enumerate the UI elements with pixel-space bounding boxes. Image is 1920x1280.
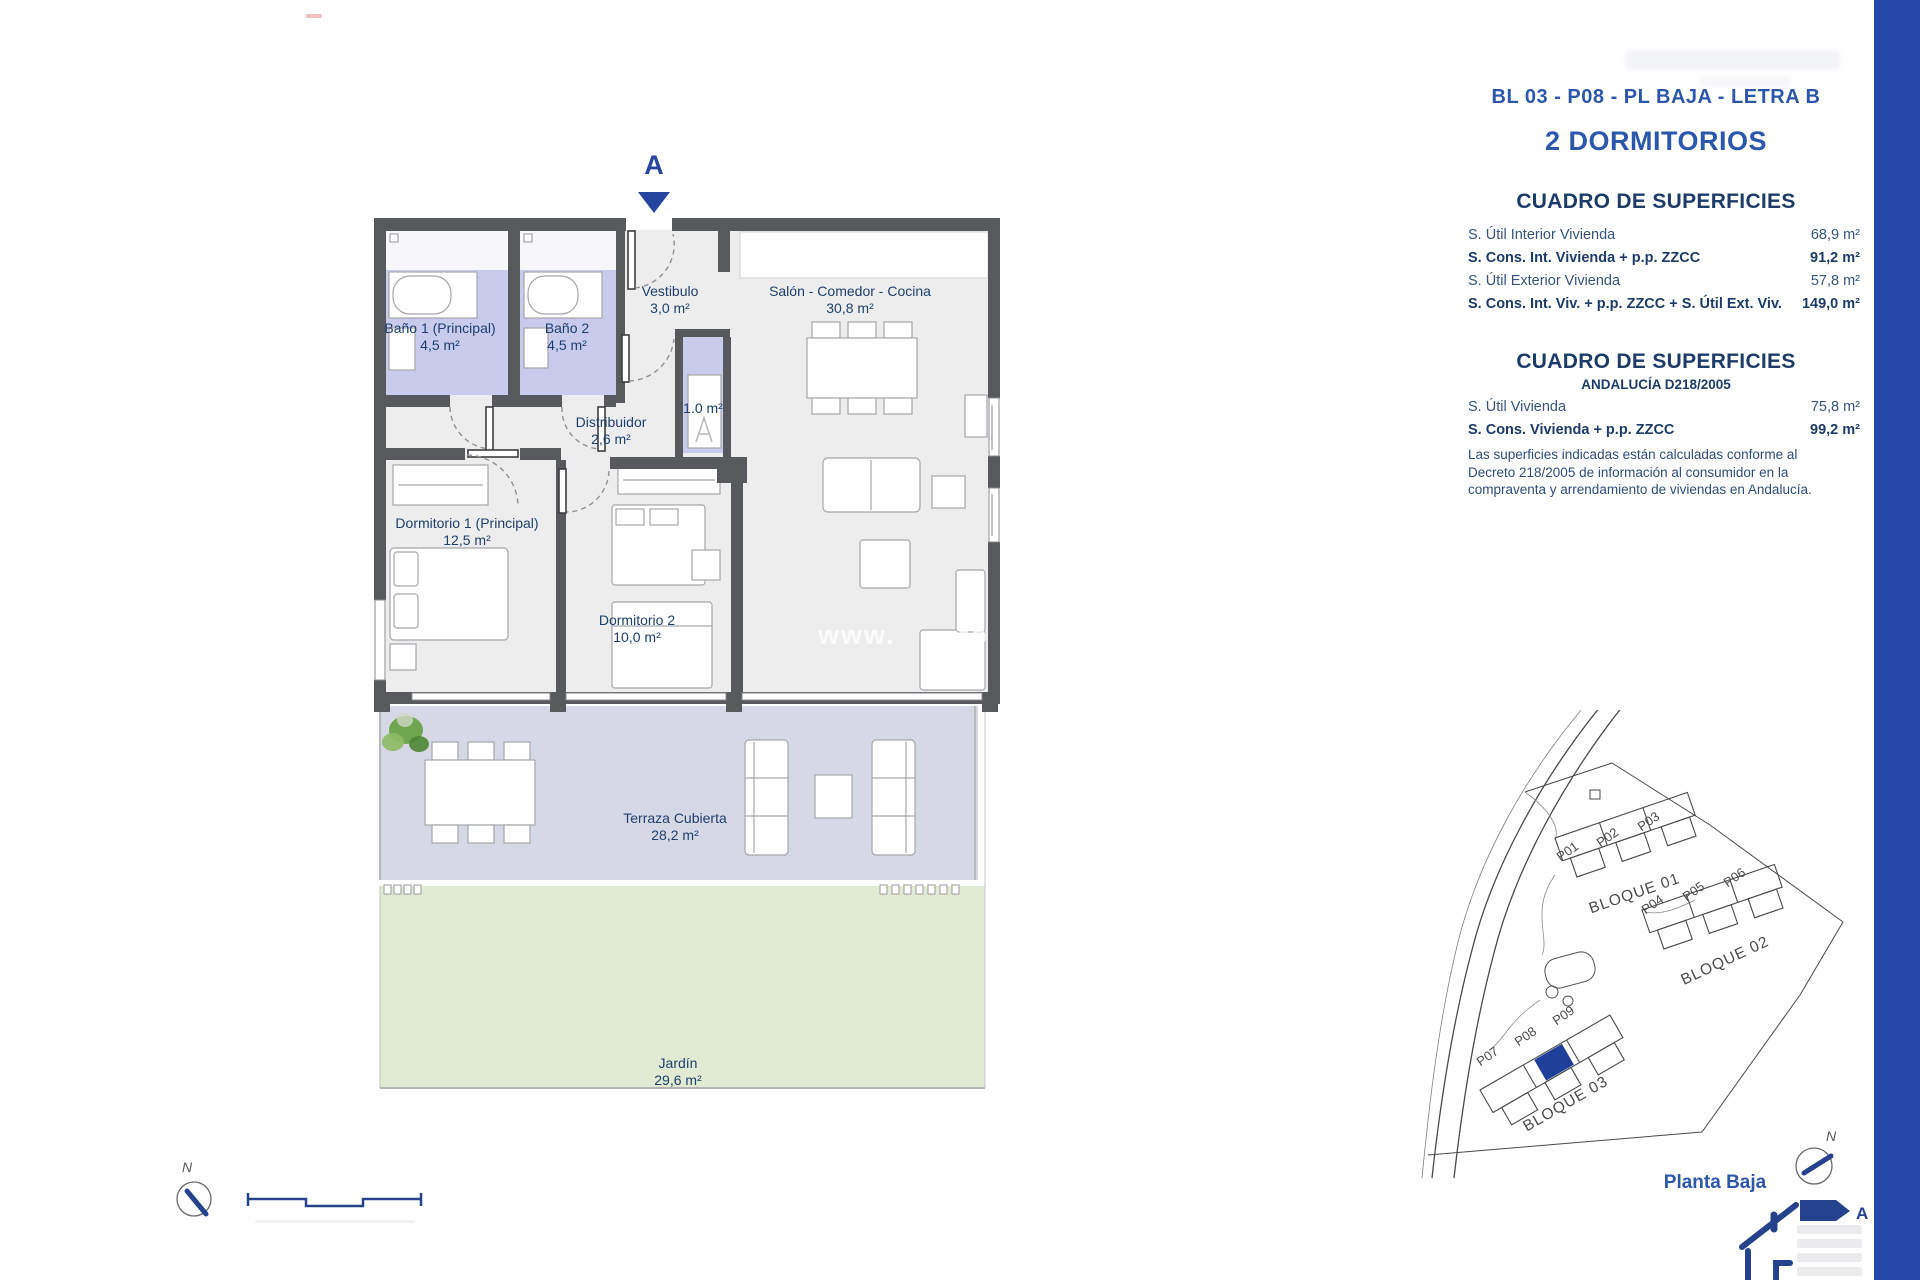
pool <box>1542 949 1598 1006</box>
house-icon <box>1742 1205 1796 1280</box>
room-label-distribuidor-area: 2,6 m² <box>591 431 631 447</box>
plan-compass-and-scale: N <box>140 1120 480 1260</box>
energy-rating-letter: A <box>1856 1204 1868 1223</box>
row-label: S. Útil Exterior Vivienda <box>1468 273 1620 289</box>
row-label: S. Cons. Int. Vivienda + p.p. ZZCC <box>1468 250 1700 266</box>
room-label-salon-name: Salón - Comedor - Cocina <box>769 283 931 299</box>
table-row: S. Cons. Int. Vivienda + p.p. ZZCC 91,2 … <box>1468 250 1860 273</box>
brochure-page: A <box>0 0 1920 1280</box>
table-row: S. Útil Vivienda 75,8 m² <box>1468 399 1860 422</box>
room-label-dormitorio2-name: Dormitorio 2 <box>599 612 675 628</box>
site-unit-p03: P03 <box>1635 809 1663 835</box>
site-unit-p06: P06 <box>1721 865 1749 891</box>
room-label-jardin-area: 29,6 m² <box>654 1072 702 1088</box>
row-label: S. Útil Vivienda <box>1468 399 1566 415</box>
room-label-vestibulo-area: 3,0 m² <box>650 300 690 316</box>
room-label-vestibulo-name: Vestibulo <box>642 283 699 299</box>
table-row: S. Útil Exterior Vivienda 57,8 m² <box>1468 273 1860 296</box>
surfaces-table-1: S. Útil Interior Vivienda 68,9 m² S. Con… <box>1468 227 1860 319</box>
row-value: 68,9 m² <box>1811 227 1860 243</box>
row-value: 149,0 m² <box>1802 296 1860 312</box>
room-label-dormitorio2-area: 10,0 m² <box>613 629 661 645</box>
room-label-bano2-area: 4,5 m² <box>547 337 587 353</box>
surfaces-table-2-title: CUADRO DE SUPERFICIES <box>1448 350 1864 374</box>
site-block-2-label: BLOQUE 02 <box>1678 933 1771 989</box>
row-value: 99,2 m² <box>1810 422 1860 438</box>
room-label-bano2-name: Baño 2 <box>545 320 590 336</box>
row-value: 57,8 m² <box>1811 273 1860 289</box>
surfaces-table-2: S. Útil Vivienda 75,8 m² S. Cons. Vivien… <box>1468 399 1860 445</box>
row-value: 91,2 m² <box>1810 250 1860 266</box>
watermark-prefix: www. <box>818 620 896 651</box>
site-unit-p07: P07 <box>1474 1044 1502 1070</box>
scale-bar <box>248 1193 421 1206</box>
kitchen-counter <box>740 232 988 278</box>
page-accent-bar <box>1874 0 1920 1280</box>
room-label-bano1-area: 4,5 m² <box>420 337 460 353</box>
site-unit-p08: P08 <box>1512 1024 1540 1050</box>
site-unit-p05: P05 <box>1680 879 1708 905</box>
room-label-dormitorio1-name: Dormitorio 1 (Principal) <box>395 515 538 531</box>
table-row: S. Cons. Vivienda + p.p. ZZCC 99,2 m² <box>1468 422 1860 445</box>
row-label: S. Cons. Vivienda + p.p. ZZCC <box>1468 422 1674 438</box>
site-compass-north-label: N <box>1826 1128 1837 1144</box>
room-label-salon-area: 30,8 m² <box>826 300 874 316</box>
site-block-1-label: BLOQUE 01 <box>1587 870 1683 917</box>
site-plan: BLOQUE 01 P01 P02 P03 BLOQUE 02 P04 P05 … <box>1390 710 1870 1180</box>
table-row: S. Útil Interior Vivienda 68,9 m² <box>1468 227 1860 250</box>
room-label-dormitorio1-area: 12,5 m² <box>443 532 491 548</box>
energy-a-arrow-icon <box>1800 1200 1850 1221</box>
unit-title: BL 03 - P08 - PL BAJA - LETRA B <box>1448 86 1864 109</box>
room-label-lavadero-area: 1.0 m² <box>683 400 723 416</box>
legal-disclaimer: Las superficies indicadas están calculad… <box>1468 446 1818 499</box>
compass-north-label: N <box>182 1159 193 1175</box>
room-label-terraza-area: 28,2 m² <box>651 827 699 843</box>
bedrooms-title: 2 DORMITORIOS <box>1448 126 1864 157</box>
highlighted-unit <box>1534 1044 1574 1081</box>
row-value: 75,8 m² <box>1811 399 1860 415</box>
room-label-bano1-name: Baño 1 (Principal) <box>384 320 495 336</box>
row-label: S. Útil Interior Vivienda <box>1468 227 1615 243</box>
surfaces-table-2-subtitle: ANDALUCÍA D218/2005 <box>1448 377 1864 392</box>
watermark-suffix: to <box>960 620 989 651</box>
photo-watermark: www. to <box>818 620 989 651</box>
site-unit-p09: P09 <box>1550 1003 1578 1029</box>
energy-bars <box>1797 1225 1862 1276</box>
row-label: S. Cons. Int. Viv. + p.p. ZZCC + S. Útil… <box>1468 296 1782 312</box>
room-label-terraza-name: Terraza Cubierta <box>623 810 727 826</box>
table-row: S. Cons. Int. Viv. + p.p. ZZCC + S. Útil… <box>1468 296 1860 319</box>
scan-artifact-red-dash <box>306 14 322 18</box>
room-label-jardin-name: Jardín <box>659 1055 698 1071</box>
surfaces-table-1-title: CUADRO DE SUPERFICIES <box>1448 190 1864 214</box>
site-unit-p01: P01 <box>1554 839 1582 865</box>
faded-watermark-top-right <box>1625 50 1840 70</box>
room-label-distribuidor-name: Distribuidor <box>576 414 647 430</box>
floor-level-label: Planta Baja <box>1650 1172 1780 1194</box>
